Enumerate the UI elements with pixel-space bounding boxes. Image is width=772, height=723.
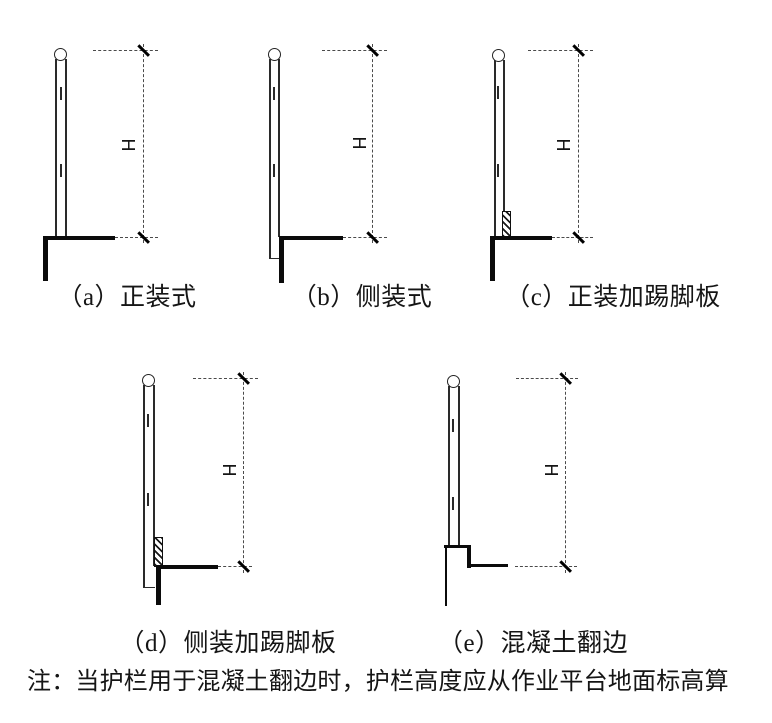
caption-a: （a）正装式 bbox=[57, 283, 196, 313]
figure-canvas: H H H bbox=[0, 0, 772, 723]
concrete-upturn-left-face bbox=[445, 545, 448, 606]
concrete-floor-line bbox=[467, 564, 508, 568]
caption-b: （b）侧装式 bbox=[292, 283, 433, 313]
caption-d: （d）侧装加踢脚板 bbox=[119, 629, 336, 659]
dimension-label-h: H bbox=[540, 461, 560, 479]
post-line-left bbox=[448, 386, 450, 547]
caption-c: （c）正装加踢脚板 bbox=[505, 283, 721, 313]
post-cap-circle bbox=[447, 375, 460, 388]
dimension-line-vertical bbox=[565, 372, 566, 573]
caption-e: （e）混凝土翻边 bbox=[438, 629, 628, 659]
post-line-right bbox=[458, 386, 460, 547]
figure-note: 注：当护栏用于混凝土翻边时，护栏高度应从作业平台地面标高算 bbox=[27, 667, 729, 698]
diagram-e: H bbox=[0, 0, 772, 723]
pipe-break-mark bbox=[452, 497, 454, 510]
pipe-break-mark bbox=[452, 419, 454, 432]
